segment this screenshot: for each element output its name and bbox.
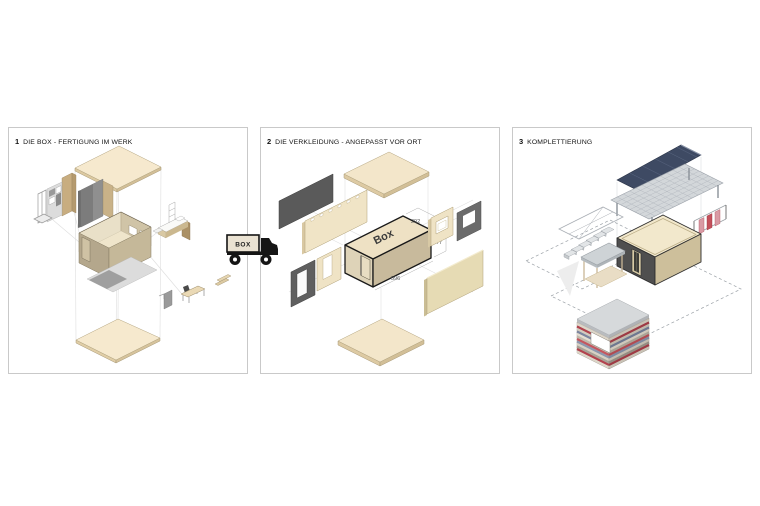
completion-drawing	[513, 128, 751, 373]
slat-screen	[694, 205, 726, 235]
kitchen-unit	[47, 173, 76, 222]
panel-verkleidung: 2DIE VERKLEIDUNG - ANGEPASST VOR ORT	[260, 127, 500, 374]
panel-1-title: DIE BOX - FERTIGUNG IM WERK	[23, 139, 132, 146]
panel-2-title: DIE VERKLEIDUNG - ANGEPASST VOR ORT	[275, 139, 422, 146]
panel-2-number: 2	[267, 137, 271, 146]
panel-komplettierung: 3KOMPLETTIERUNG	[512, 127, 752, 374]
floor-cladding-panel	[338, 319, 424, 366]
layered-wall	[577, 299, 649, 369]
truck-cargo-label: BOX	[235, 242, 251, 249]
entry-door	[632, 249, 641, 276]
cladding-panel-right	[424, 250, 483, 317]
exploded-cladding-drawing: Box 292 277 596	[261, 128, 499, 373]
panel-1-number: 1	[15, 137, 19, 146]
bed-unit	[153, 202, 190, 240]
completed-box	[617, 215, 701, 285]
panel-1-header: 1DIE BOX - FERTIGUNG IM WERK	[15, 131, 132, 149]
panel-3-header: 3KOMPLETTIERUNG	[519, 131, 592, 149]
door-panel-dark	[291, 260, 315, 307]
roof-slab	[75, 146, 161, 192]
panel-fertigung: 1DIE BOX - FERTIGUNG IM WERK	[8, 127, 248, 374]
exploded-box-drawing	[9, 128, 247, 373]
base-slab	[76, 319, 160, 363]
window-panel-gray	[457, 201, 481, 241]
box-door	[361, 256, 370, 281]
ground-shadow	[557, 261, 579, 296]
door-panel-cream	[317, 247, 341, 291]
window-panel-cream	[428, 207, 453, 248]
roof-cladding-panel	[344, 152, 429, 198]
dim-length: 596	[391, 276, 400, 282]
truck-wheels	[230, 254, 272, 265]
panel-2-header: 2DIE VERKLEIDUNG - ANGEPASST VOR ORT	[267, 131, 422, 149]
truck-icon: BOX	[219, 222, 283, 268]
panel-3-title: KOMPLETTIERUNG	[527, 139, 592, 146]
dim-depth: 292	[411, 219, 420, 225]
panel-3-number: 3	[519, 137, 523, 146]
